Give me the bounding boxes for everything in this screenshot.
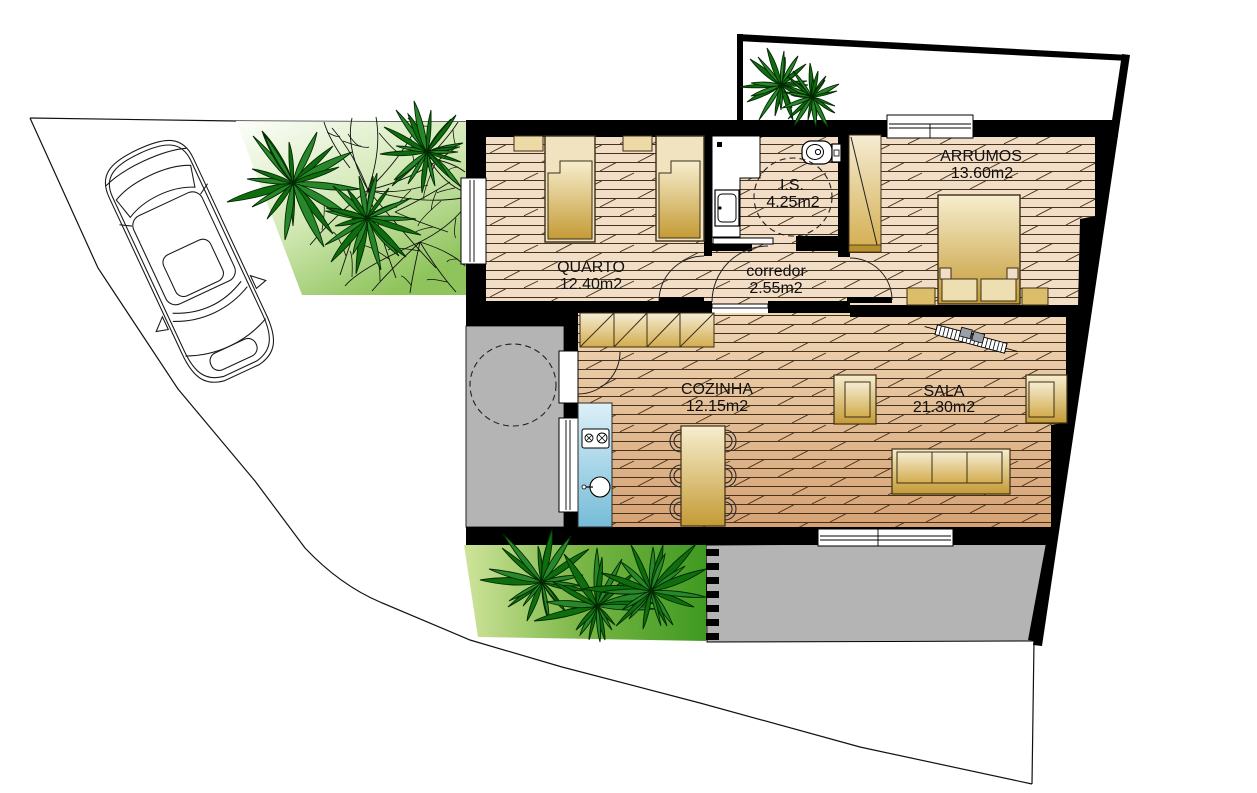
svg-text:ARRUMOS: ARRUMOS <box>940 148 1022 165</box>
svg-text:4.25m2: 4.25m2 <box>766 194 819 211</box>
svg-text:13.60m2: 13.60m2 <box>951 165 1013 182</box>
svg-text:I.S.: I.S. <box>780 177 804 194</box>
svg-text:COZINHA: COZINHA <box>681 381 753 398</box>
svg-text:2.55m2: 2.55m2 <box>749 280 802 297</box>
svg-text:QUARTO: QUARTO <box>557 259 625 276</box>
svg-text:12.15m2: 12.15m2 <box>686 398 748 415</box>
svg-text:21.30m2: 21.30m2 <box>913 399 975 416</box>
svg-text:corredor: corredor <box>746 263 806 280</box>
svg-text:SALA: SALA <box>924 383 965 400</box>
svg-text:12.40m2: 12.40m2 <box>560 276 622 293</box>
